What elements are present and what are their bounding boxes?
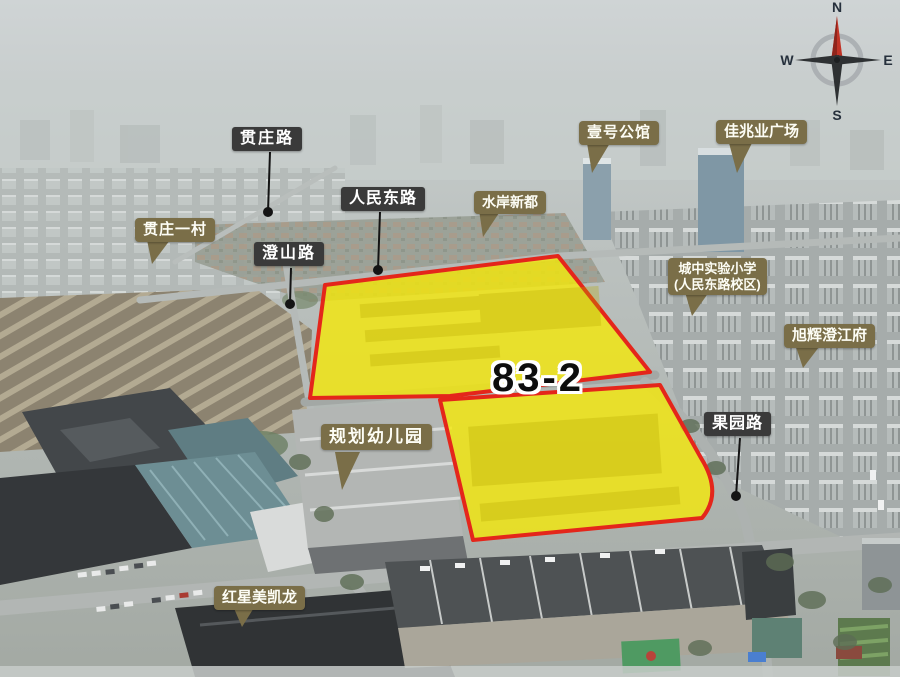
compass-e-label: E [883,52,892,68]
aerial-photo-background: N S W E [0,0,900,677]
place-label-xuhui-chengjiangfu: 旭辉澄江府 [784,324,875,348]
place-label-hongxing-meikailong: 红星美凯龙 [214,586,305,610]
place-label-jiazhaoye-plaza: 佳兆业广场 [716,120,807,144]
road-label-guanzhuang-lu: 贯庄路 [232,127,302,151]
place-label-chengzhong-experimental-primary-school: 城中实验小学 (人民东路校区) [668,258,767,295]
place-label-guanzhuang-yicun: 贯庄一村 [135,218,215,242]
aerial-parcel-map: N S W E 贯庄路 人民东路 澄山路 果园路 贯庄一村 壹号公馆 佳兆业广场… [0,0,900,677]
road-label-chengshan-lu: 澄山路 [254,242,324,266]
compass-s-label: S [832,107,841,123]
place-label-yihao-gongguan: 壹号公馆 [579,121,659,145]
place-label-planned-kindergarten: 规划幼儿园 [321,424,432,450]
parcel-id-label: 83-2 [468,356,608,401]
school-label-line2: (人民东路校区) [674,277,761,293]
compass-n-label: N [832,0,842,15]
road-label-guoyuan-lu: 果园路 [704,412,771,436]
road-label-renmin-donglu: 人民东路 [341,187,425,211]
compass-w-label: W [780,52,794,68]
school-label-line1: 城中实验小学 [678,261,756,276]
place-label-shuian-xindu: 水岸新都 [474,191,546,214]
